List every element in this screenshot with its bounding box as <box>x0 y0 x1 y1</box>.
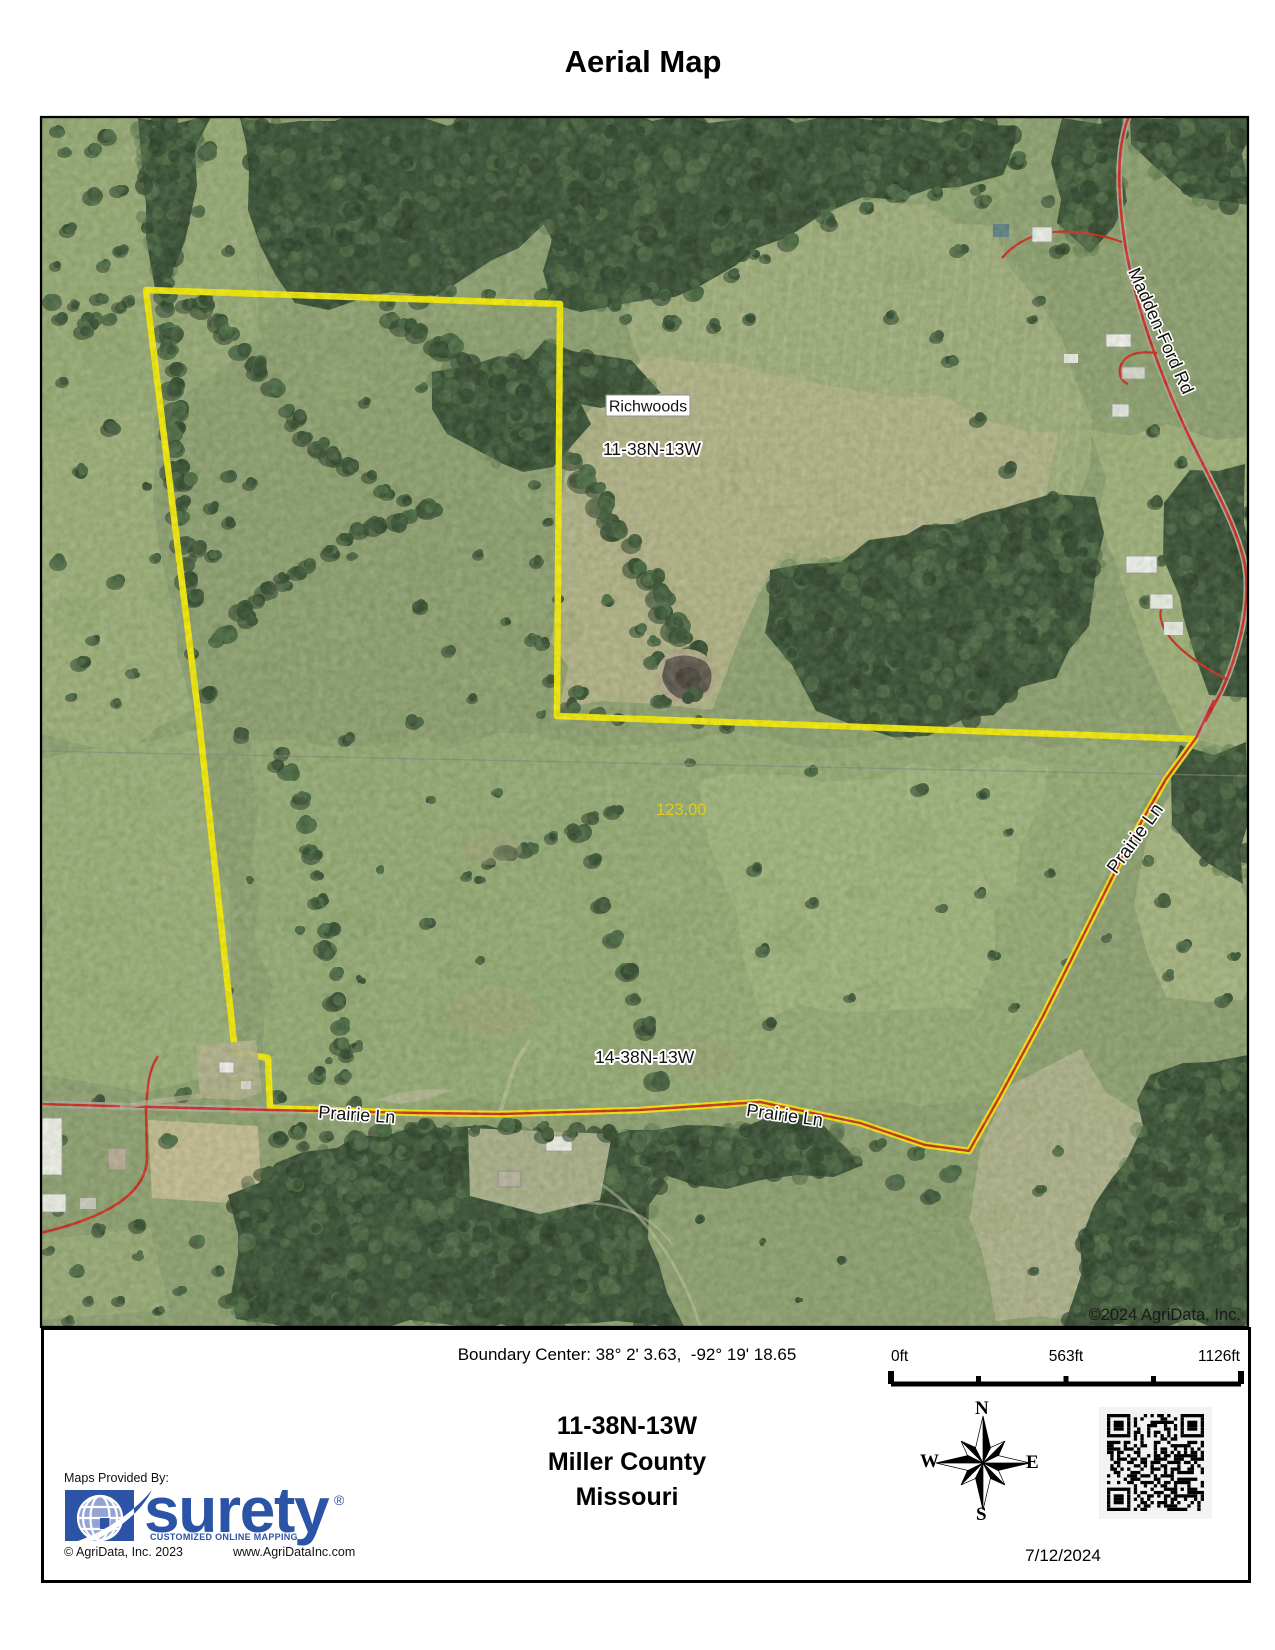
svg-text:11-38N-13W: 11-38N-13W <box>603 439 701 459</box>
svg-text:14-38N-13W: 14-38N-13W <box>595 1047 695 1067</box>
svg-text:123.00: 123.00 <box>656 801 706 819</box>
svg-text:©2024 AgriData, Inc.: ©2024 AgriData, Inc. <box>1089 1306 1242 1324</box>
svg-text:Richwoods: Richwoods <box>609 399 687 416</box>
